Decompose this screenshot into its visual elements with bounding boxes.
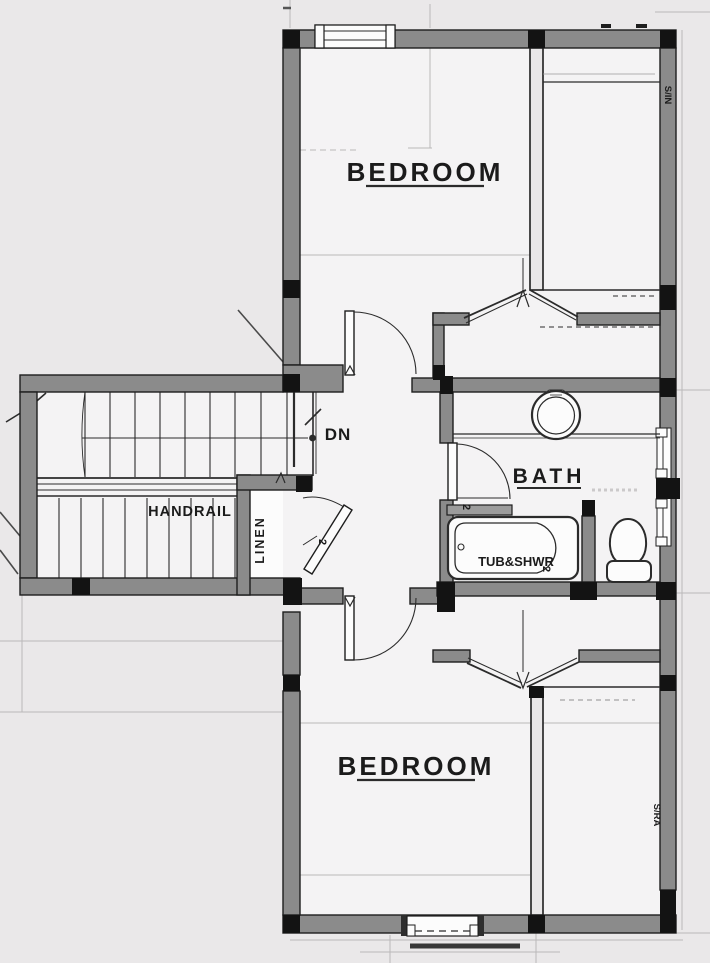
- bath-left-wall-upper: [440, 392, 453, 443]
- sink: [532, 390, 580, 439]
- stair-top-wall: [20, 375, 283, 392]
- top-bedroom-label: BEDROOM: [347, 157, 504, 187]
- stair-left-wall: [20, 392, 37, 578]
- wall-note-top: S/IN: [662, 86, 673, 105]
- tub-door-size: 2: [540, 566, 552, 572]
- linen-label: LINEN: [253, 516, 267, 564]
- bath-label: BATH: [513, 465, 586, 488]
- hall-bottom-wall-left: [300, 588, 343, 604]
- bath-bottom-wall: [437, 582, 660, 596]
- bottom-bedroom-left-wall-b: [283, 691, 300, 915]
- bath-door-size: 2: [460, 504, 472, 510]
- bathtub: [448, 517, 578, 579]
- top-bedroom-left-wall: [283, 48, 300, 365]
- down-direction-dot: [309, 435, 316, 442]
- bottom-bedroom-label: BEDROOM: [338, 751, 495, 781]
- floor-plan-page: BEDROOM BEDROOM BATH HANDRAIL DN TUB&SHW…: [0, 0, 710, 963]
- tub-toilet-divider: [582, 516, 595, 582]
- linen-door-size: 2: [316, 539, 328, 545]
- bottom-bedroom-window: [401, 915, 484, 936]
- down-label: DN: [325, 425, 352, 444]
- linen-left-wall: [237, 475, 250, 595]
- wall-note-bottom: S/RA: [651, 804, 662, 827]
- top-closet-divider-wall: [530, 48, 543, 290]
- stair-bottom-wall: [20, 578, 300, 595]
- floor-plan-drawing: BEDROOM BEDROOM BATH HANDRAIL DN TUB&SHW…: [0, 0, 710, 963]
- bottom-bedroom-left-wall-a: [283, 612, 300, 675]
- top-bedroom-window: [315, 25, 395, 48]
- bottom-closet-divider-wall: [531, 697, 543, 915]
- hall-bottom-wall-right: [410, 588, 440, 604]
- handrail-label: HANDRAIL: [148, 504, 232, 520]
